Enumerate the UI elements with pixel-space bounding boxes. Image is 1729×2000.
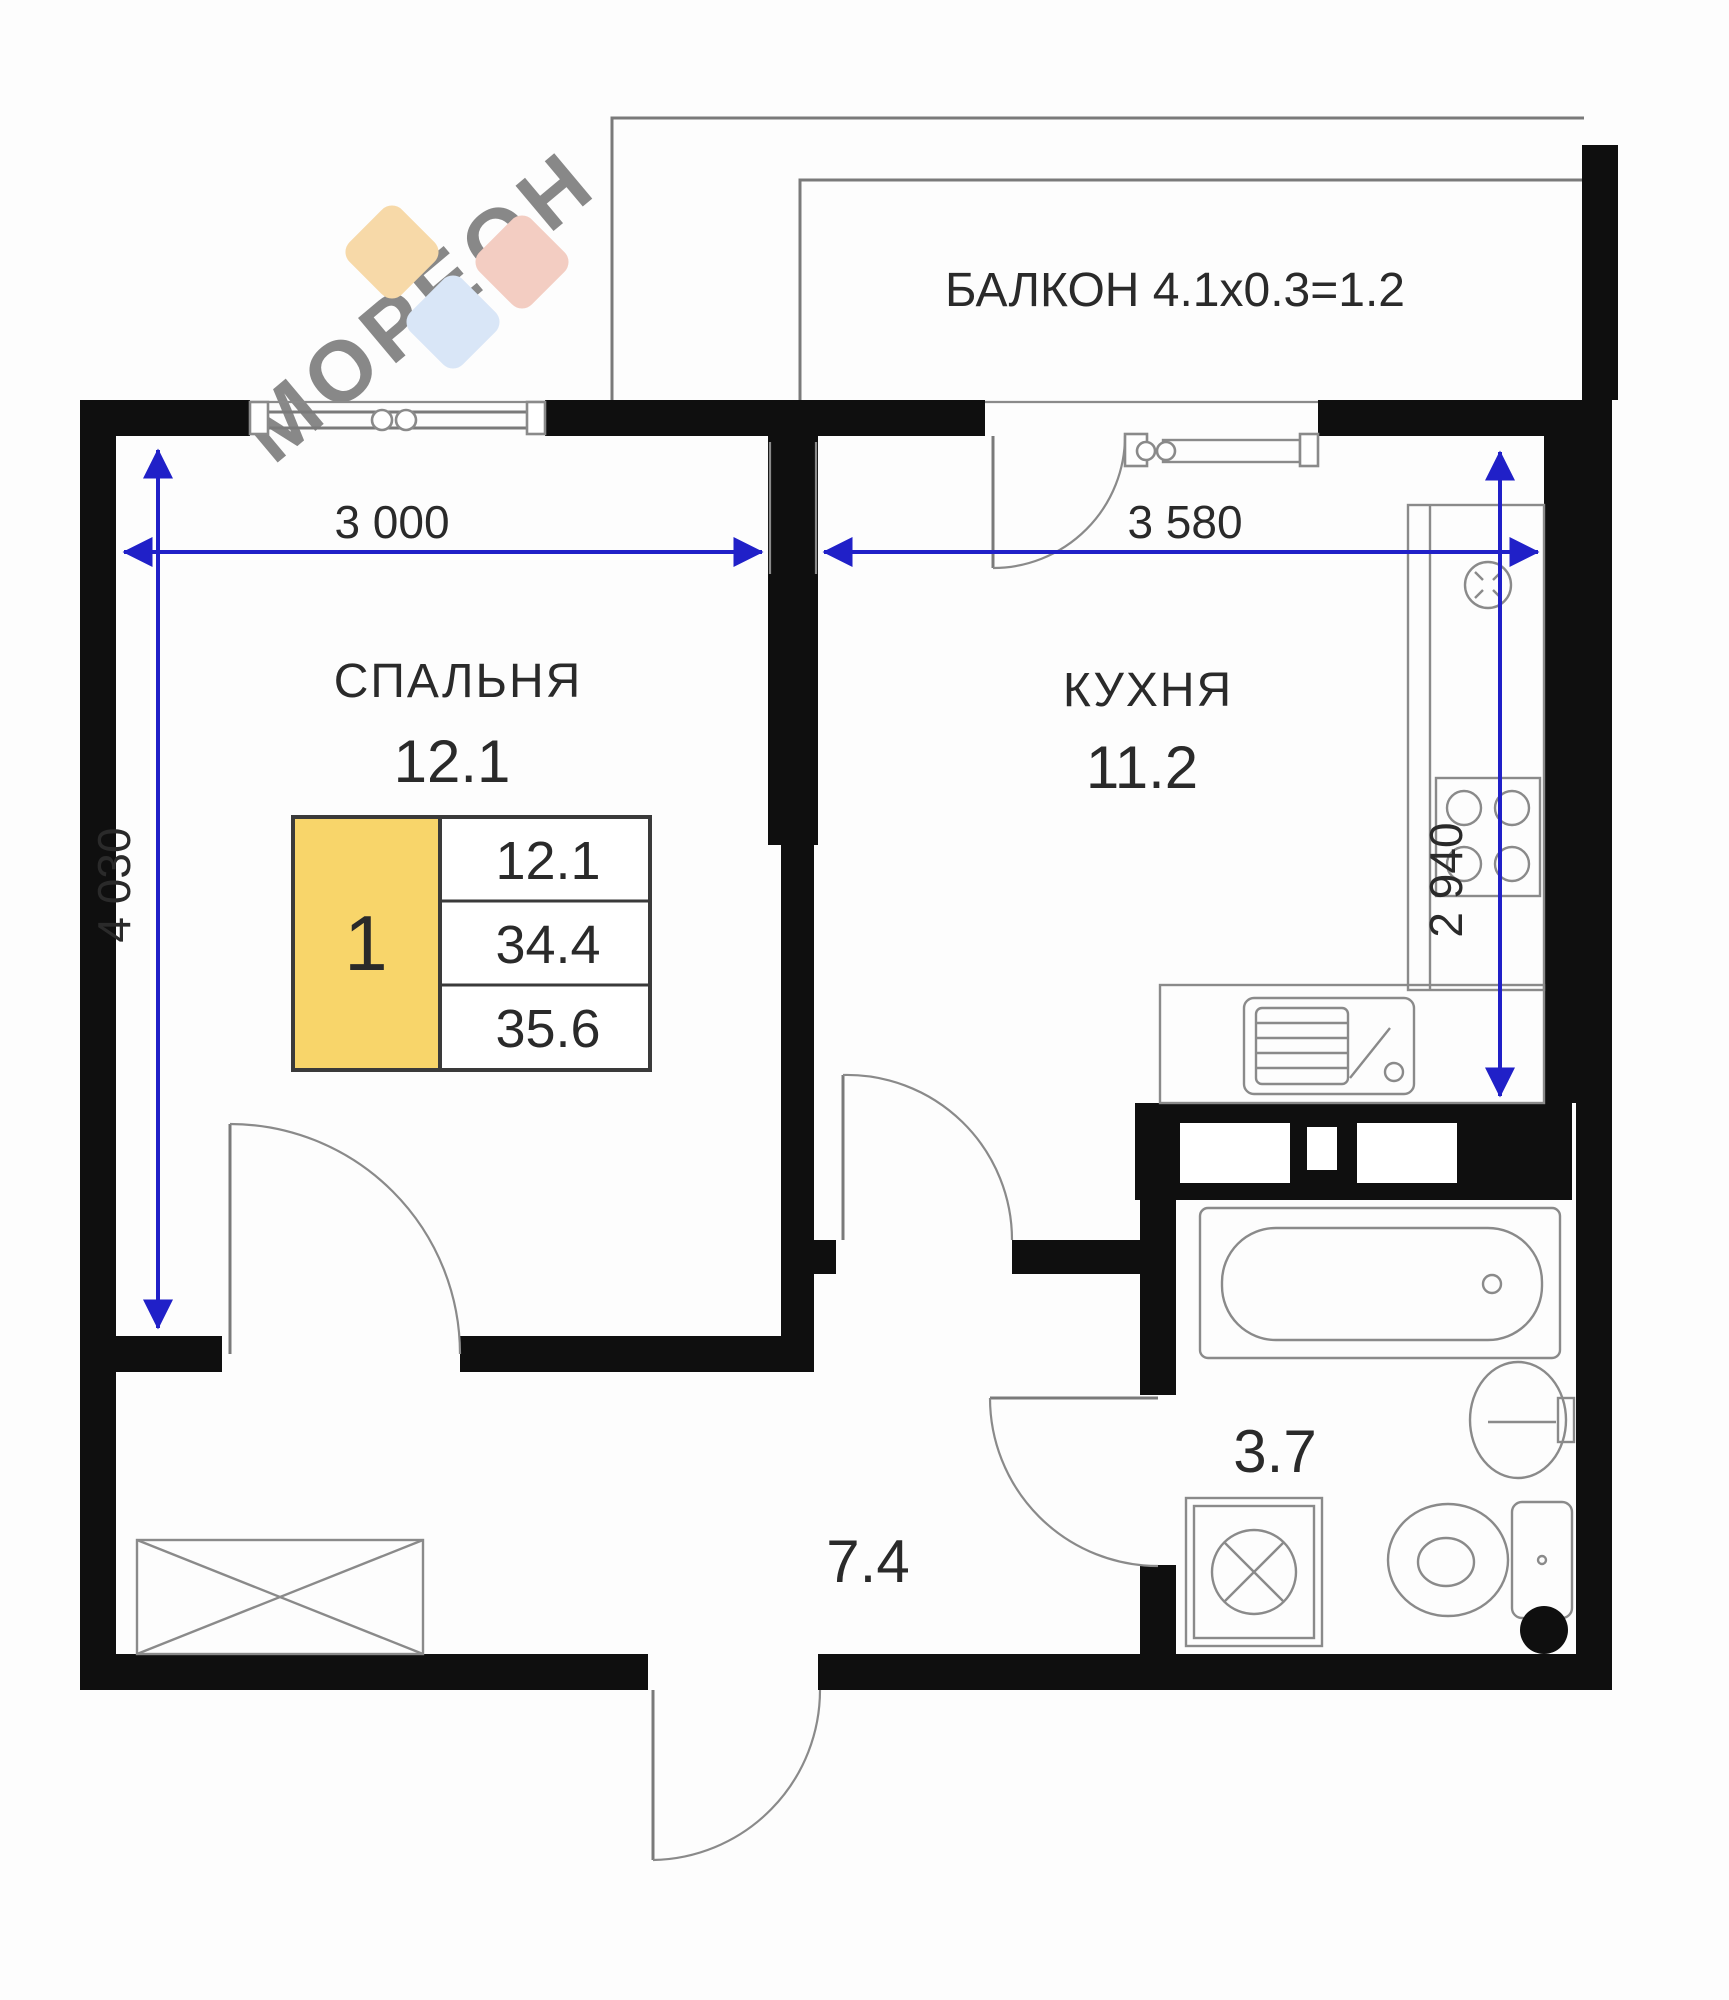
fan-blade-3 xyxy=(1475,590,1483,598)
vent-duct-center xyxy=(1307,1127,1337,1170)
bathroom-left-wall-lower xyxy=(1140,1565,1176,1654)
balcony-label: БАЛКОН 4.1x0.3=1.2 xyxy=(945,264,1405,317)
balcony-window-hinge-b xyxy=(1157,442,1175,460)
dim-label-bedroom-width: 3 000 xyxy=(334,496,449,548)
bathtub-inner xyxy=(1222,1228,1542,1340)
washbasin-bowl xyxy=(1470,1362,1566,1478)
bedroom-bottom-wall-right xyxy=(460,1336,814,1372)
washbasin-icon xyxy=(1470,1362,1574,1478)
kitchen-label: КУХНЯ xyxy=(1063,664,1233,717)
bedroom-area: 12.1 xyxy=(394,728,511,795)
bedroom-label: СПАЛЬНЯ xyxy=(334,655,583,708)
top-wall-right xyxy=(1318,400,1612,436)
kitchen-door-jamb xyxy=(814,1240,836,1274)
bedroom-door xyxy=(230,1124,460,1354)
bedroom-kitchen-wall-upper xyxy=(768,436,818,845)
kitchen-door xyxy=(843,1075,1012,1240)
unit-info-table: 1 12.1 34.4 35.6 xyxy=(293,817,650,1070)
kitchen-counter-bottom xyxy=(1160,985,1544,1103)
balcony-right-wall xyxy=(1582,145,1618,400)
apartment-area-value: 34.4 xyxy=(495,915,600,975)
bottom-wall-left xyxy=(80,1654,648,1690)
toilet-button xyxy=(1538,1556,1546,1564)
balcony-door-swing xyxy=(993,436,1125,568)
doors xyxy=(230,436,1158,1860)
bathtub-drain xyxy=(1483,1275,1501,1293)
bathroom-left-wall-upper xyxy=(1140,1200,1176,1395)
entrance-door xyxy=(653,1690,820,1860)
kitchen-shaft-wall xyxy=(1544,436,1576,1103)
bedroom-window-cap-left xyxy=(250,402,268,434)
total-area-value: 35.6 xyxy=(495,999,600,1059)
cooker-hood-fan-icon xyxy=(1465,562,1511,608)
fan-circle xyxy=(1465,562,1511,608)
hallway-area: 7.4 xyxy=(826,1528,909,1595)
kitchen-area: 11.2 xyxy=(1086,734,1198,801)
floor-plan: МОРЕОН БАЛКОН 4.1x0.3=1.2 xyxy=(0,0,1729,2000)
bathroom-door-swing xyxy=(990,1398,1158,1566)
balcony-door xyxy=(993,436,1125,568)
toilet-bowl-inner xyxy=(1418,1538,1474,1586)
balcony-window-bar xyxy=(1163,440,1300,462)
left-wall xyxy=(80,400,116,1690)
vent-duct-right xyxy=(1357,1123,1457,1183)
washing-machine-icon xyxy=(1186,1498,1322,1646)
balcony: БАЛКОН 4.1x0.3=1.2 xyxy=(612,118,1618,400)
balcony-window-hinge-a xyxy=(1137,442,1155,460)
bedroom-kitchen-wall-lower xyxy=(781,845,814,1340)
wardrobe-icon xyxy=(137,1540,423,1654)
bedroom-window-cap-right xyxy=(527,402,545,434)
kitchen-sink-icon xyxy=(1244,998,1414,1094)
bedroom-window-sash-hinge-left xyxy=(372,410,392,430)
bedroom-window-sash-hinge-right xyxy=(396,410,416,430)
toilet-tank xyxy=(1512,1502,1572,1618)
balcony-window-cap-right xyxy=(1300,434,1318,466)
floor-plan-canvas: МОРЕОН БАЛКОН 4.1x0.3=1.2 xyxy=(0,0,1729,2000)
vent-shaft-wall xyxy=(1135,1103,1572,1200)
balcony-window xyxy=(985,402,1318,466)
kitchen-fixtures xyxy=(1160,505,1544,1103)
unit-number: 1 xyxy=(344,899,387,987)
stove-burner-1 xyxy=(1447,791,1481,825)
bathroom-door xyxy=(990,1398,1158,1566)
top-wall-center xyxy=(545,400,985,436)
toilet-icon xyxy=(1388,1502,1572,1618)
riser-pipe-icon xyxy=(1520,1606,1568,1654)
dim-label-kitchen-width: 3 580 xyxy=(1127,496,1242,548)
kitchen-door-swing xyxy=(843,1075,1012,1240)
bedroom-door-swing xyxy=(230,1124,460,1354)
entrance-door-swing xyxy=(653,1690,820,1860)
dim-label-bedroom-height: 4 030 xyxy=(88,827,140,942)
toilet-bowl xyxy=(1388,1504,1508,1616)
living-area-value: 12.1 xyxy=(495,831,600,891)
sink-drain xyxy=(1385,1063,1403,1081)
bathtub-icon xyxy=(1200,1208,1560,1358)
bathroom-area: 3.7 xyxy=(1233,1418,1316,1485)
balcony-outer-rail xyxy=(612,118,1584,400)
bedroom-bottom-wall-left xyxy=(116,1336,222,1372)
bottom-wall-right xyxy=(818,1654,1612,1690)
right-wall xyxy=(1576,400,1612,1690)
dim-label-kitchen-height: 2 940 xyxy=(1420,822,1472,937)
sink-drainboard xyxy=(1256,1008,1348,1084)
vent-duct-left xyxy=(1180,1123,1290,1183)
fan-blade-1 xyxy=(1475,572,1483,580)
